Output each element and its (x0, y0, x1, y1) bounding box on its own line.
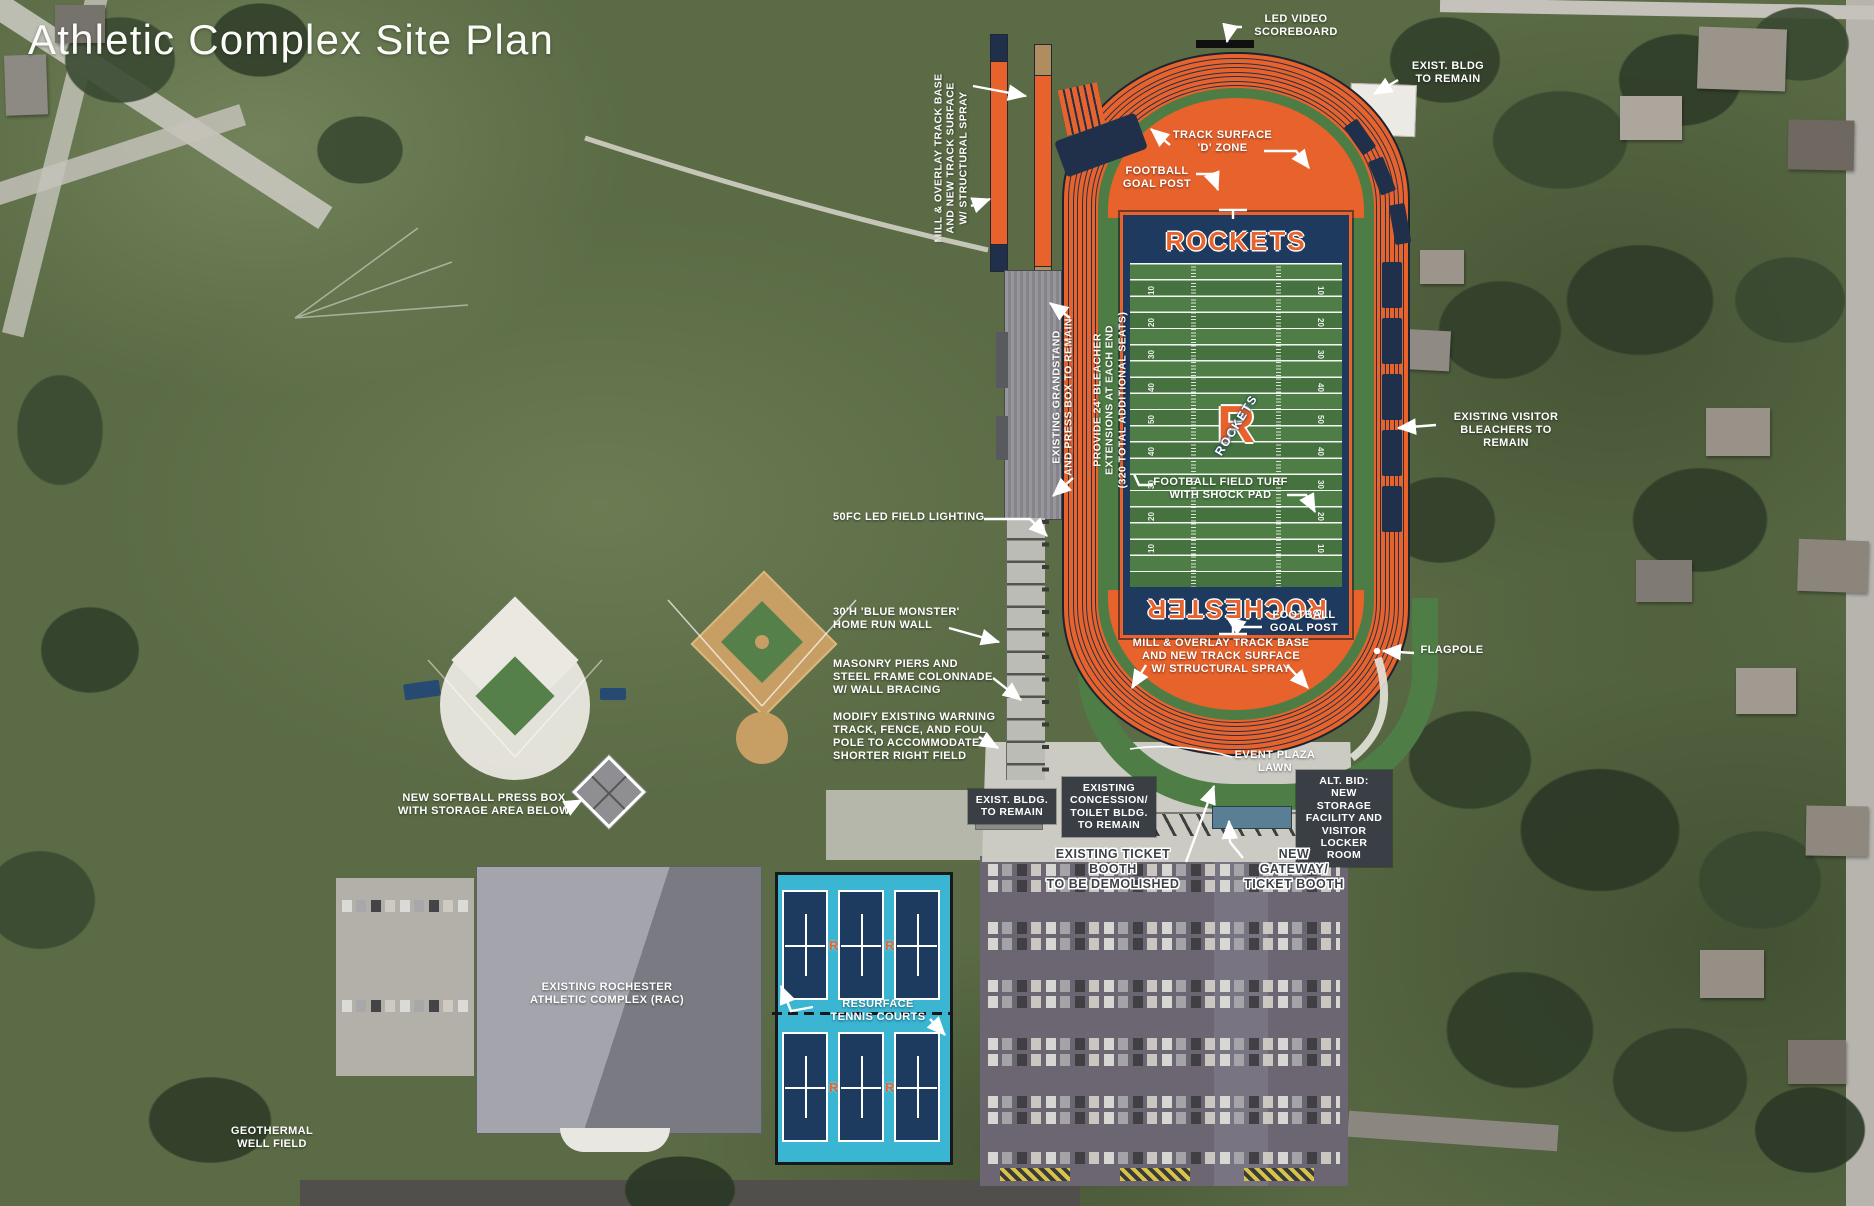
tennis-court (894, 1032, 940, 1142)
yard-number: 20 (1147, 512, 1156, 521)
annotation-exist-bldg-plaza: EXIST. BLDG. TO REMAIN (968, 789, 1056, 824)
annotation-concession: EXISTING CONCESSION/ TOILET BLDG. TO REM… (1062, 777, 1156, 837)
house (1700, 950, 1764, 998)
yard-number: 40 (1147, 447, 1156, 456)
tennis-court (838, 890, 884, 1000)
annotation-masonry-piers: MASONRY PIERS AND STEEL FRAME COLONNADE … (833, 658, 1001, 697)
parked-cars-row (988, 996, 1340, 1008)
runway-pit (990, 34, 1008, 62)
rac-entrance-canopy (560, 1128, 670, 1152)
yard-number: 40 (1316, 447, 1325, 456)
tennis-r-mark: R (885, 1080, 894, 1095)
yard-number: 20 (1316, 512, 1325, 521)
house (1797, 539, 1869, 593)
runway-strip (1034, 44, 1052, 284)
annotation-new-gateway: NEW GATEWAY/ TICKET BOOTH (1243, 847, 1345, 891)
yard-number: 30 (1316, 350, 1325, 359)
hash-marks (1191, 263, 1196, 587)
pitchers-mound (755, 635, 769, 649)
runway-strip (990, 34, 1008, 272)
yard-number: 10 (1316, 286, 1325, 295)
parking-lot (980, 856, 1348, 1186)
track-d-zone-north (1108, 98, 1364, 218)
annotation-flagpole: FLAGPOLE (1416, 644, 1488, 657)
annotation-goal-post-bottom: FOOTBALL GOAL POST (1258, 609, 1350, 635)
annotation-bleacher-extensions: PROVIDE 24' BLEACHER EXTENSIONS AT EACH … (1091, 312, 1128, 489)
annotation-grandstand: EXISTING GRANDSTAND AND PRESS BOX TO REM… (1051, 318, 1076, 476)
visitor-bleacher-section (1382, 430, 1402, 476)
annotation-rac: EXISTING ROCHESTER ATHLETIC COMPLEX (RAC… (528, 981, 686, 1007)
yard-number: 30 (1147, 350, 1156, 359)
parking-island (1000, 1168, 1070, 1181)
tennis-r-mark: R (885, 938, 894, 953)
visitor-bleacher-section (1382, 262, 1402, 308)
visitor-bleacher-section (1382, 318, 1402, 364)
gateway-structure (1212, 806, 1292, 829)
parked-cars-row (988, 980, 1340, 992)
visitor-bleacher-section (1382, 486, 1402, 532)
parked-cars-row (988, 922, 1340, 934)
parked-cars-row (988, 1152, 1340, 1164)
tennis-r-mark: R (829, 938, 838, 953)
press-box (996, 332, 1008, 388)
parked-cars-row (342, 900, 468, 912)
parked-cars-row (342, 1000, 468, 1012)
house (1420, 250, 1464, 284)
annotation-field-lighting: 50FC LED FIELD LIGHTING (833, 511, 993, 524)
site-plan: R R R R ROCKETS 10 20 30 40 50 40 30 20 … (0, 0, 1874, 1206)
annotation-blue-monster: 30'H 'BLUE MONSTER' HOME RUN WALL (833, 606, 983, 632)
masonry-piers (1042, 520, 1049, 780)
press-box (996, 416, 1008, 460)
parked-cars-row (988, 1112, 1340, 1124)
annotation-mill-overlay-left: MILL & OVERLAY TRACK BASE AND NEW TRACK … (932, 73, 969, 242)
tennis-court (894, 890, 940, 1000)
page-title: Athletic Complex Site Plan (28, 16, 554, 64)
yard-number: 20 (1316, 318, 1325, 327)
tennis-court (782, 1032, 828, 1142)
house (1788, 119, 1855, 170)
runway-pit-sand (1034, 44, 1052, 76)
baseball-homeplate-circle (736, 712, 788, 764)
parking-island (1244, 1168, 1314, 1181)
house (1620, 96, 1682, 140)
visitor-bleacher-section (1382, 374, 1402, 420)
yard-number: 50 (1316, 415, 1325, 424)
annotation-field-turf: FOOTBALL FIELD TURF WITH SHOCK PAD (1153, 476, 1288, 502)
colonnade-wall (1006, 518, 1045, 780)
yard-number: 50 (1147, 415, 1156, 424)
tennis-court (838, 1032, 884, 1142)
annotation-mill-overlay-bottom: MILL & OVERLAY TRACK BASE AND NEW TRACK … (1130, 637, 1312, 676)
parked-cars-row (988, 938, 1340, 950)
football-field: ROCKETS 10 20 30 40 50 40 30 20 10 10 20… (1120, 212, 1352, 638)
runway-pit (990, 244, 1008, 272)
house (1788, 1040, 1846, 1084)
annotation-modify-warning-track: MODIFY EXISTING WARNING TRACK, FENCE, AN… (833, 711, 1011, 763)
house (1697, 26, 1787, 91)
parking-drive-aisle (1214, 856, 1268, 1186)
yard-number: 40 (1316, 383, 1325, 392)
annotation-led-scoreboard: LED VIDEO SCOREBOARD (1240, 13, 1352, 39)
yard-number: 10 (1316, 544, 1325, 553)
yard-number: 40 (1147, 383, 1156, 392)
tennis-court (782, 890, 828, 1000)
hash-marks (1276, 263, 1281, 587)
parking-island (1120, 1168, 1190, 1181)
house (1806, 805, 1869, 856)
softball-dugout (600, 688, 626, 700)
house (1706, 408, 1770, 456)
yard-number: 20 (1147, 318, 1156, 327)
end-zone-home: ROCKETS (1123, 221, 1349, 262)
parked-cars-row (988, 1096, 1340, 1108)
led-scoreboard (1196, 40, 1254, 48)
annotation-geothermal: GEOTHERMAL WELL FIELD (226, 1125, 318, 1151)
annotation-exist-bldg-top: EXIST. BLDG TO REMAIN (1398, 60, 1498, 86)
annotation-ticket-demolish: EXISTING TICKET BOOTH TO BE DEMOLISHED (1032, 847, 1194, 891)
tennis-r-mark: R (829, 1080, 838, 1095)
midfield-logo: R ROCKETS (1217, 395, 1255, 455)
yard-number: 10 (1147, 286, 1156, 295)
plaza-walk (826, 790, 986, 860)
house (1636, 560, 1692, 602)
parked-cars-row (988, 1054, 1340, 1066)
yard-number: 30 (1316, 480, 1325, 489)
parked-cars-row (988, 1038, 1340, 1050)
annotation-tennis: RESURFACE TENNIS COURTS (815, 998, 941, 1024)
annotation-track-d-zone: TRACK SURFACE 'D' ZONE (1160, 129, 1285, 155)
annotation-softball-pressbox: NEW SOFTBALL PRESS BOX WITH STORAGE AREA… (398, 792, 570, 818)
annotation-visitor-bleachers: EXISTING VISITOR BLEACHERS TO REMAIN (1437, 411, 1575, 450)
annotation-goal-post-top: FOOTBALL GOAL POST (1118, 165, 1196, 191)
yard-number: 10 (1147, 544, 1156, 553)
house (1736, 668, 1796, 714)
